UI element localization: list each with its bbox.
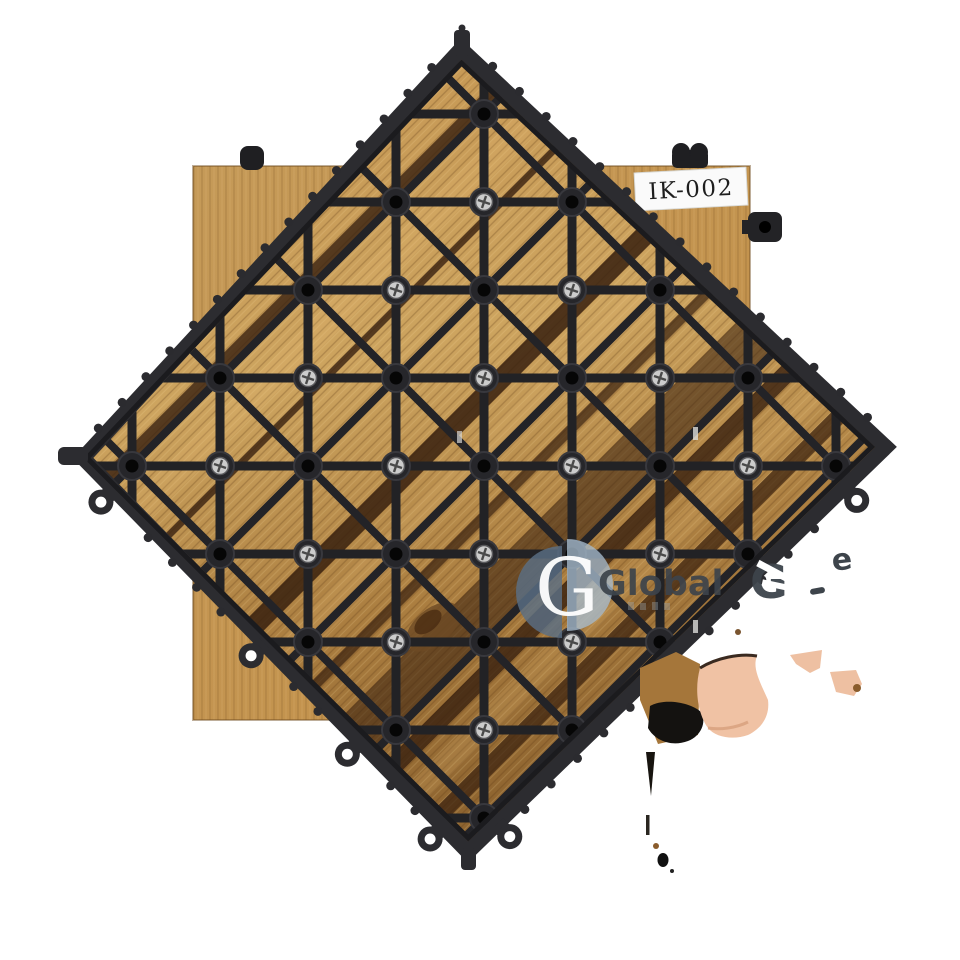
- drainage-hole: [478, 636, 491, 649]
- edge-nub: [573, 754, 582, 763]
- rib-mold-mark: [693, 620, 698, 633]
- edge-nub: [427, 63, 436, 72]
- drainage-hole: [566, 372, 579, 385]
- edge-nub: [94, 424, 103, 433]
- edge-nub: [380, 114, 389, 123]
- edge-nub: [705, 626, 714, 635]
- edge-nub: [756, 313, 765, 322]
- drainage-hole: [478, 284, 491, 297]
- drainage-hole: [302, 636, 315, 649]
- bottom-corner-tab: [461, 848, 476, 870]
- under-tile-clip-top-left: [240, 146, 264, 170]
- drainage-hole: [742, 372, 755, 385]
- edge-nub: [599, 728, 608, 737]
- edge-nub: [386, 781, 395, 790]
- watermark-text: Global: [598, 564, 723, 604]
- left-corner-tab: [58, 447, 88, 465]
- drainage-hole: [390, 372, 403, 385]
- edge-nub: [168, 558, 177, 567]
- eyelet-hole: [342, 749, 353, 760]
- drainage-hole: [478, 460, 491, 473]
- edge-nub: [410, 806, 419, 815]
- dark-line-fragment: [646, 815, 650, 835]
- edge-nub: [289, 682, 298, 691]
- edge-nub: [488, 62, 497, 71]
- edge-nub: [626, 703, 635, 712]
- drainage-hole: [478, 108, 491, 121]
- edge-nub: [165, 346, 174, 355]
- fragment-dot: [853, 684, 861, 692]
- drainage-hole: [830, 460, 843, 473]
- drainage-hole: [654, 460, 667, 473]
- drainage-hole: [390, 196, 403, 209]
- edge-nub: [836, 388, 845, 397]
- logo-letter: G: [535, 541, 599, 634]
- edge-nub: [261, 243, 270, 252]
- product-label: IK-002: [634, 167, 748, 211]
- product-label-text: IK-002: [648, 175, 735, 205]
- edge-nub: [118, 398, 127, 407]
- edge-nub: [542, 112, 551, 121]
- edge-nub: [810, 524, 819, 533]
- edge-nub: [216, 608, 225, 617]
- rib-mold-mark: [457, 431, 462, 443]
- edge-nub: [213, 295, 222, 304]
- watermark-fragment-e: e: [830, 542, 854, 579]
- dark-dot-fragment: [658, 853, 669, 867]
- edge-nub: [729, 287, 738, 296]
- edge-nub: [731, 601, 740, 610]
- edge-nub: [313, 707, 322, 716]
- edge-nub: [547, 779, 556, 788]
- edge-nub: [783, 338, 792, 347]
- drainage-hole: [126, 460, 139, 473]
- eyelet-hole: [246, 650, 257, 661]
- edge-nub: [237, 269, 246, 278]
- drainage-hole: [214, 548, 227, 561]
- fragment-dot: [735, 629, 741, 635]
- top-corner-nub: [459, 25, 466, 32]
- edge-nub: [863, 413, 872, 422]
- edge-nub: [568, 137, 577, 146]
- edge-nub: [622, 187, 631, 196]
- eyelet-hole: [425, 833, 436, 844]
- edge-nub: [308, 192, 317, 201]
- edge-nub: [144, 533, 153, 542]
- drainage-hole: [566, 196, 579, 209]
- drainage-hole: [214, 372, 227, 385]
- product-photo-canvas: IK-002 G Global: [0, 0, 960, 960]
- drainage-hole: [654, 284, 667, 297]
- edge-nub: [192, 583, 201, 592]
- edge-nub: [189, 321, 198, 330]
- edge-nub: [332, 166, 341, 175]
- edge-nub: [595, 162, 604, 171]
- edge-nub: [141, 372, 150, 381]
- edge-nub: [649, 212, 658, 221]
- drainage-hole: [390, 724, 403, 737]
- edge-nub: [702, 262, 711, 271]
- edge-nub: [356, 140, 365, 149]
- drainage-hole: [302, 284, 315, 297]
- edge-nub: [520, 805, 529, 814]
- edge-nub: [809, 363, 818, 372]
- edge-nub: [284, 218, 293, 227]
- rib-mold-mark: [693, 427, 698, 440]
- edge-nub: [676, 237, 685, 246]
- top-corner-tab: [454, 30, 470, 56]
- fragment-dot: [653, 843, 659, 849]
- edge-nub: [403, 89, 412, 98]
- dark-dot-fragment: [670, 869, 674, 873]
- drainage-hole: [302, 460, 315, 473]
- eyelet-hole: [95, 497, 106, 508]
- drainage-hole: [390, 548, 403, 561]
- eyelet-hole: [851, 495, 862, 506]
- eyelet-hole: [504, 831, 515, 842]
- product-photo: IK-002 G Global: [0, 0, 960, 960]
- edge-nub: [515, 87, 524, 96]
